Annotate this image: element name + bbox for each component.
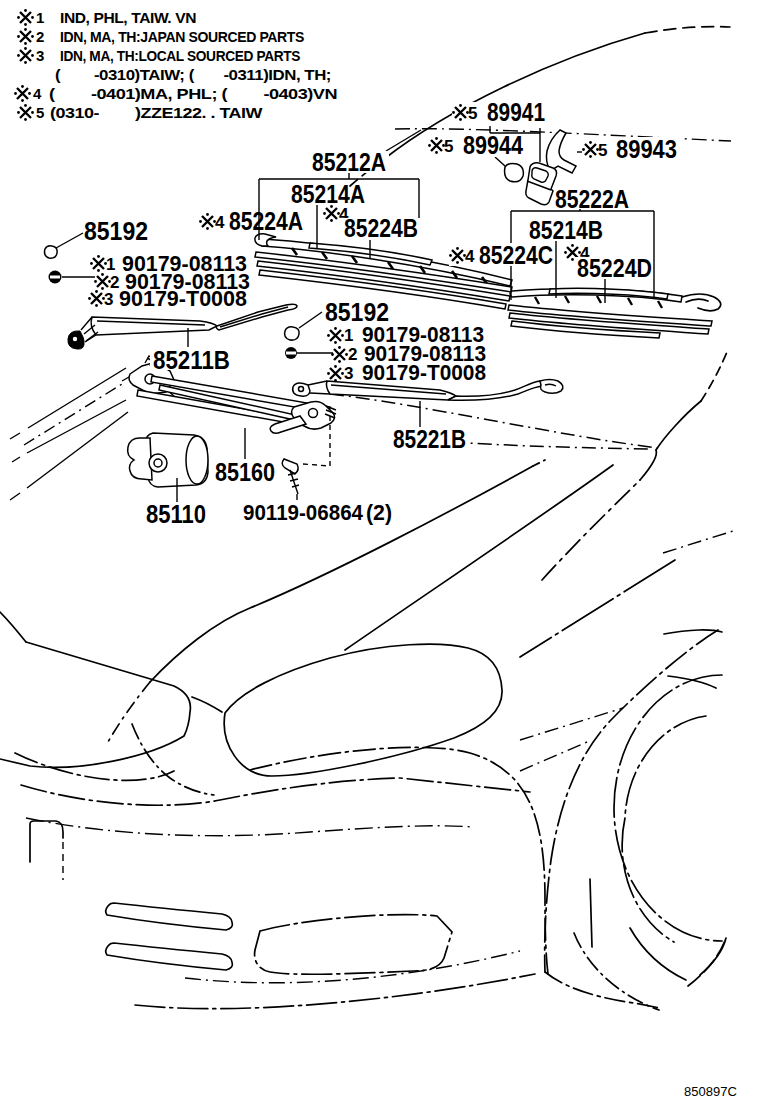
svg-text:( -0310)TAIW; ( -: ( -0310)TAIW; ( -0311)IDN, TH; — [55, 66, 331, 83]
svg-text:85224C: 85224C — [479, 240, 553, 270]
svg-text:89941: 89941 — [487, 97, 545, 127]
svg-text:3: 3 — [344, 364, 353, 383]
svg-text:4: 4 — [215, 213, 225, 232]
svg-text:85221B: 85221B — [393, 424, 466, 454]
svg-text:850897C: 850897C — [684, 1084, 737, 1099]
svg-text:85214A: 85214A — [291, 179, 365, 209]
svg-text:89943: 89943 — [616, 134, 677, 164]
svg-text:1: 1 — [36, 9, 44, 26]
svg-text:85224A: 85224A — [229, 206, 303, 236]
svg-text:85192: 85192 — [84, 216, 148, 246]
svg-text:90179-T0008: 90179-T0008 — [362, 360, 486, 385]
svg-text:85110: 85110 — [146, 499, 206, 529]
svg-text:85212A: 85212A — [312, 147, 386, 177]
svg-text:4: 4 — [465, 247, 475, 266]
svg-text:5: 5 — [444, 137, 453, 156]
svg-text:(0310- )ZZE122. . TAIW: (0310- )ZZE122. . TAIW — [50, 104, 263, 121]
svg-text:85211B: 85211B — [153, 345, 230, 375]
svg-text:3: 3 — [36, 47, 44, 64]
svg-text:5: 5 — [468, 104, 477, 123]
svg-text:3: 3 — [104, 290, 113, 309]
svg-text:85222A: 85222A — [555, 184, 629, 214]
svg-text:85224B: 85224B — [344, 213, 418, 243]
svg-text:90179-T0008: 90179-T0008 — [119, 286, 247, 311]
svg-text:(2): (2) — [366, 500, 392, 525]
svg-text:2: 2 — [36, 28, 44, 45]
svg-text:IDN, MA, TH:JAPAN SOURCED PART: IDN, MA, TH:JAPAN SOURCED PARTS — [60, 28, 304, 45]
svg-text:1: 1 — [344, 326, 353, 345]
svg-text:1: 1 — [106, 255, 115, 274]
svg-text:( -0401)MA, PHL; (: ( -0401)MA, PHL; ( -0403)VN — [49, 85, 337, 102]
svg-text:89944: 89944 — [463, 130, 523, 160]
svg-text:2: 2 — [348, 345, 357, 364]
svg-text:4: 4 — [33, 85, 42, 102]
svg-text:5: 5 — [36, 104, 44, 121]
svg-text:85224D: 85224D — [577, 253, 652, 283]
svg-text:5: 5 — [598, 141, 607, 160]
svg-text:IDN, MA, TH:LOCAL SOURCED PART: IDN, MA, TH:LOCAL SOURCED PARTS — [60, 47, 300, 64]
svg-text:IND, PHL, TAIW. VN: IND, PHL, TAIW. VN — [60, 9, 196, 26]
svg-text:85160: 85160 — [215, 457, 275, 487]
svg-text:90119-06864: 90119-06864 — [243, 500, 364, 525]
